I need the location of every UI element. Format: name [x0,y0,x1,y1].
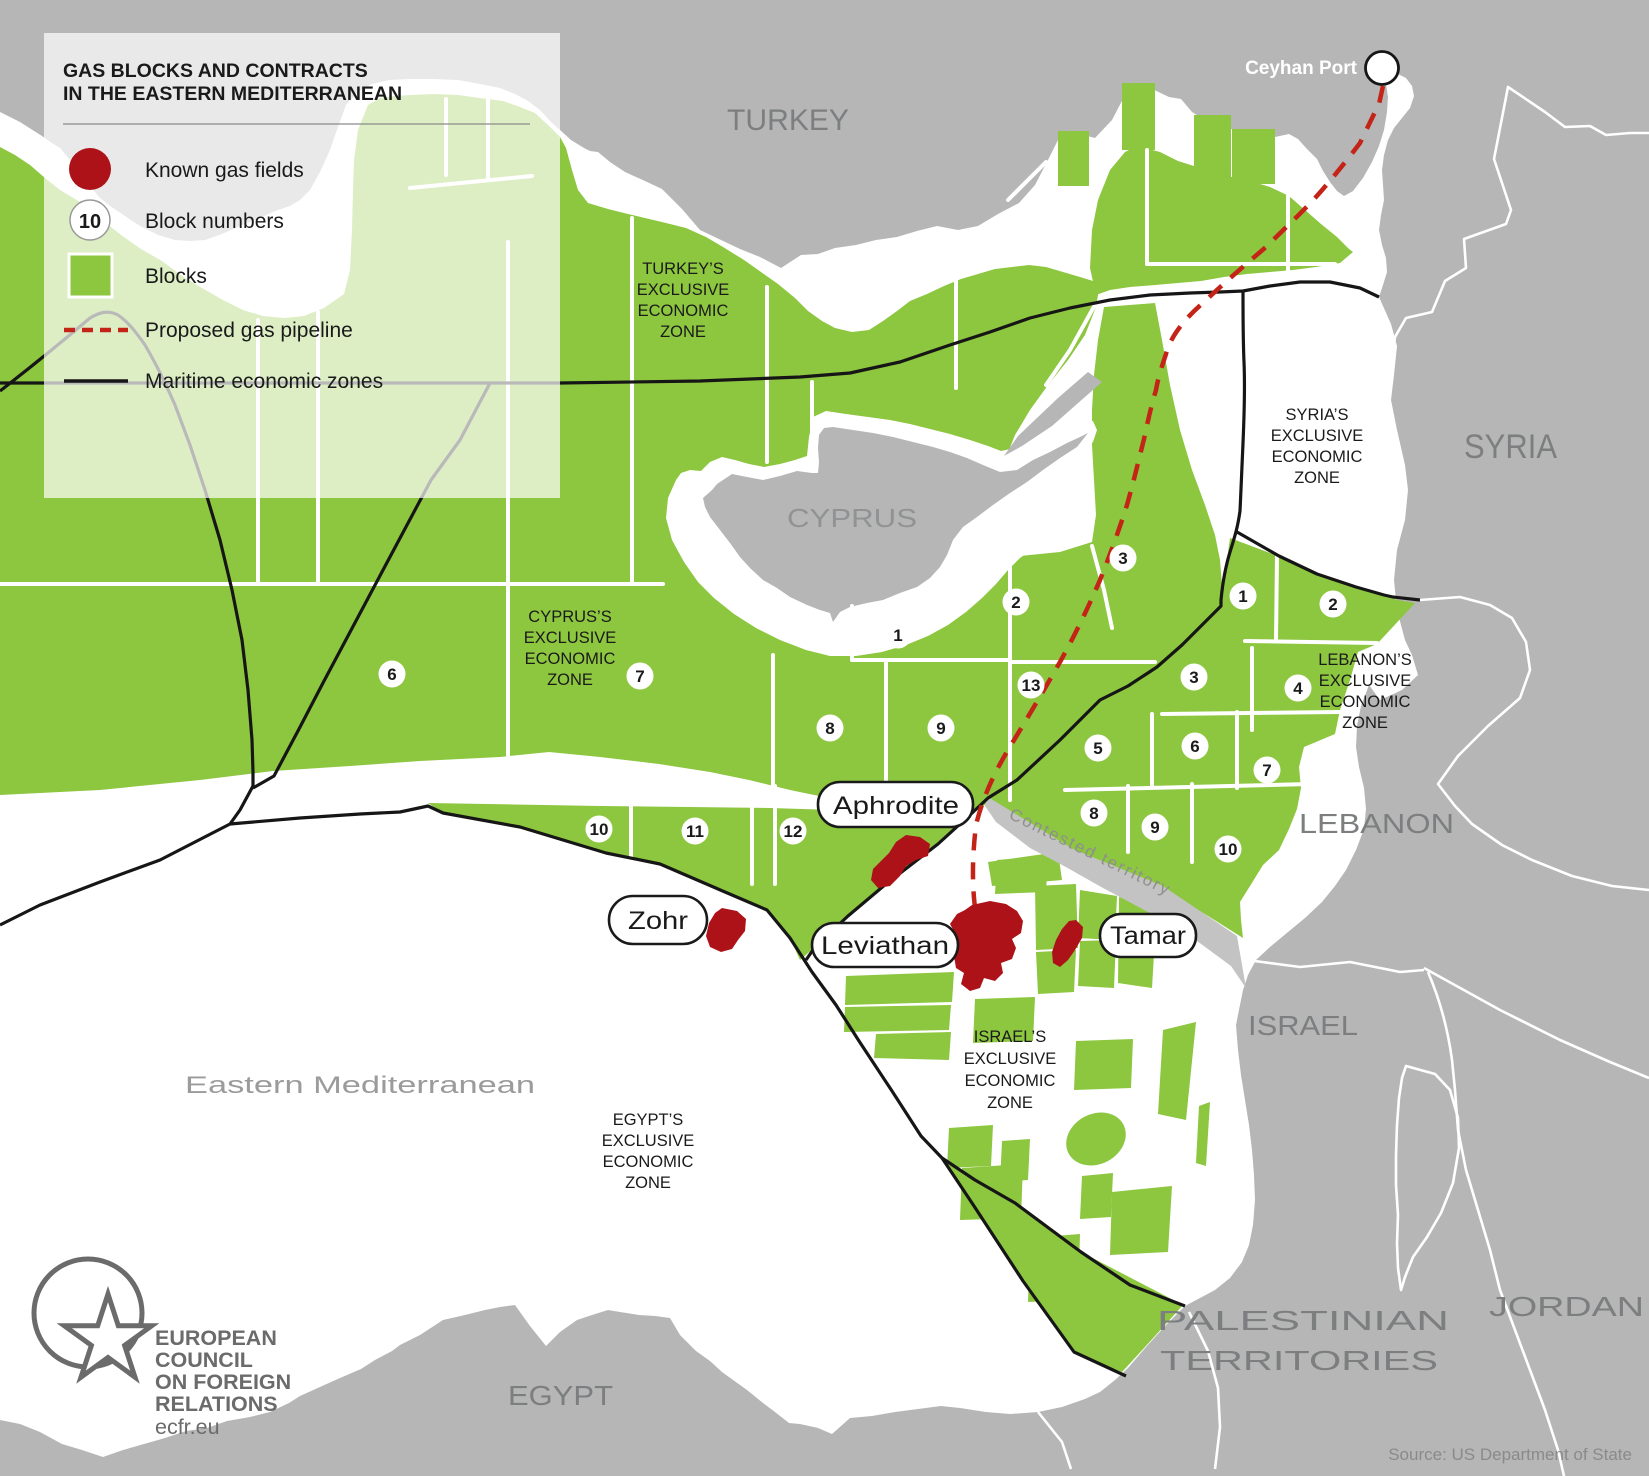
svg-text:EXCLUSIVE: EXCLUSIVE [602,1132,695,1150]
svg-text:7: 7 [635,667,644,686]
svg-text:SYRIA’S: SYRIA’S [1286,406,1349,424]
svg-text:IN THE EASTERN MEDITERRANEAN: IN THE EASTERN MEDITERRANEAN [63,83,402,105]
svg-text:2: 2 [1328,595,1337,614]
svg-text:ECONOMIC: ECONOMIC [525,650,616,668]
svg-text:2: 2 [1011,593,1020,612]
svg-text:EXCLUSIVE: EXCLUSIVE [1319,672,1412,690]
svg-text:EXCLUSIVE: EXCLUSIVE [1271,427,1364,445]
svg-text:ECONOMIC: ECONOMIC [638,302,729,320]
svg-text:LEBANON: LEBANON [1299,808,1454,839]
svg-text:PALESTINIAN: PALESTINIAN [1157,1305,1449,1336]
svg-text:13: 13 [1022,676,1041,695]
svg-text:Known gas fields: Known gas fields [145,159,304,182]
svg-text:10: 10 [79,211,101,233]
svg-text:11: 11 [686,822,704,841]
svg-text:6: 6 [387,665,396,684]
svg-text:6: 6 [1190,737,1199,756]
svg-text:ISRAEL’S: ISRAEL’S [974,1028,1046,1046]
svg-text:8: 8 [825,719,834,738]
svg-text:TURKEY’S: TURKEY’S [642,260,724,278]
svg-text:ECONOMIC: ECONOMIC [1320,693,1411,711]
svg-text:ZONE: ZONE [660,323,706,341]
svg-text:ZONE: ZONE [625,1174,671,1192]
svg-text:EGYPT: EGYPT [508,1380,613,1411]
svg-text:JORDAN: JORDAN [1489,1291,1644,1322]
svg-text:RELATIONS: RELATIONS [155,1392,278,1416]
svg-text:Zohr: Zohr [628,907,688,935]
svg-text:ECONOMIC: ECONOMIC [965,1072,1056,1090]
svg-text:Ceyhan Port: Ceyhan Port [1245,58,1358,79]
svg-text:ISRAEL: ISRAEL [1248,1010,1358,1041]
svg-text:Aphrodite: Aphrodite [833,792,959,820]
svg-text:Block numbers: Block numbers [145,210,284,233]
svg-text:ZONE: ZONE [987,1094,1033,1112]
svg-text:10: 10 [1219,840,1238,859]
svg-text:CYPRUS’S: CYPRUS’S [528,608,611,626]
svg-text:3: 3 [1189,668,1198,687]
svg-text:EXCLUSIVE: EXCLUSIVE [524,629,617,647]
svg-text:TERRITORIES: TERRITORIES [1160,1345,1438,1376]
svg-text:12: 12 [784,822,803,841]
svg-text:7: 7 [1262,761,1271,780]
svg-text:GAS BLOCKS AND CONTRACTS: GAS BLOCKS AND CONTRACTS [63,60,368,82]
svg-text:ECONOMIC: ECONOMIC [1272,448,1363,466]
svg-text:Blocks: Blocks [145,265,207,288]
svg-text:ON FOREIGN: ON FOREIGN [155,1370,291,1394]
svg-text:Source: US Department of State: Source: US Department of State [1388,1445,1632,1464]
svg-text:ZONE: ZONE [1294,469,1340,487]
svg-text:EXCLUSIVE: EXCLUSIVE [964,1050,1057,1068]
svg-text:Tamar: Tamar [1110,922,1186,950]
svg-text:Eastern Mediterranean: Eastern Mediterranean [185,1072,535,1099]
svg-text:ECONOMIC: ECONOMIC [603,1153,694,1171]
svg-text:ZONE: ZONE [1342,714,1388,732]
svg-text:EUROPEAN: EUROPEAN [155,1326,277,1350]
svg-text:8: 8 [1089,804,1098,823]
svg-text:COUNCIL: COUNCIL [155,1348,253,1372]
svg-text:Leviathan: Leviathan [821,932,949,960]
svg-text:ZONE: ZONE [547,671,593,689]
svg-text:SYRIA: SYRIA [1464,428,1557,466]
svg-text:Proposed gas pipeline: Proposed gas pipeline [145,319,353,342]
svg-text:Maritime economic zones: Maritime economic zones [145,370,383,393]
svg-text:9: 9 [936,719,945,738]
svg-text:9: 9 [1150,818,1159,837]
svg-text:5: 5 [1093,739,1102,758]
svg-text:LEBANON’S: LEBANON’S [1318,651,1412,669]
svg-text:TURKEY: TURKEY [727,104,849,137]
svg-text:CYPRUS: CYPRUS [787,503,917,533]
svg-text:10: 10 [590,820,609,839]
svg-text:1: 1 [1238,587,1247,606]
svg-text:EXCLUSIVE: EXCLUSIVE [637,281,730,299]
svg-text:EGYPT’S: EGYPT’S [613,1111,684,1129]
svg-text:4: 4 [1293,679,1303,698]
svg-text:ecfr.eu: ecfr.eu [155,1415,220,1439]
svg-text:1: 1 [893,626,902,645]
svg-text:3: 3 [1118,549,1127,568]
